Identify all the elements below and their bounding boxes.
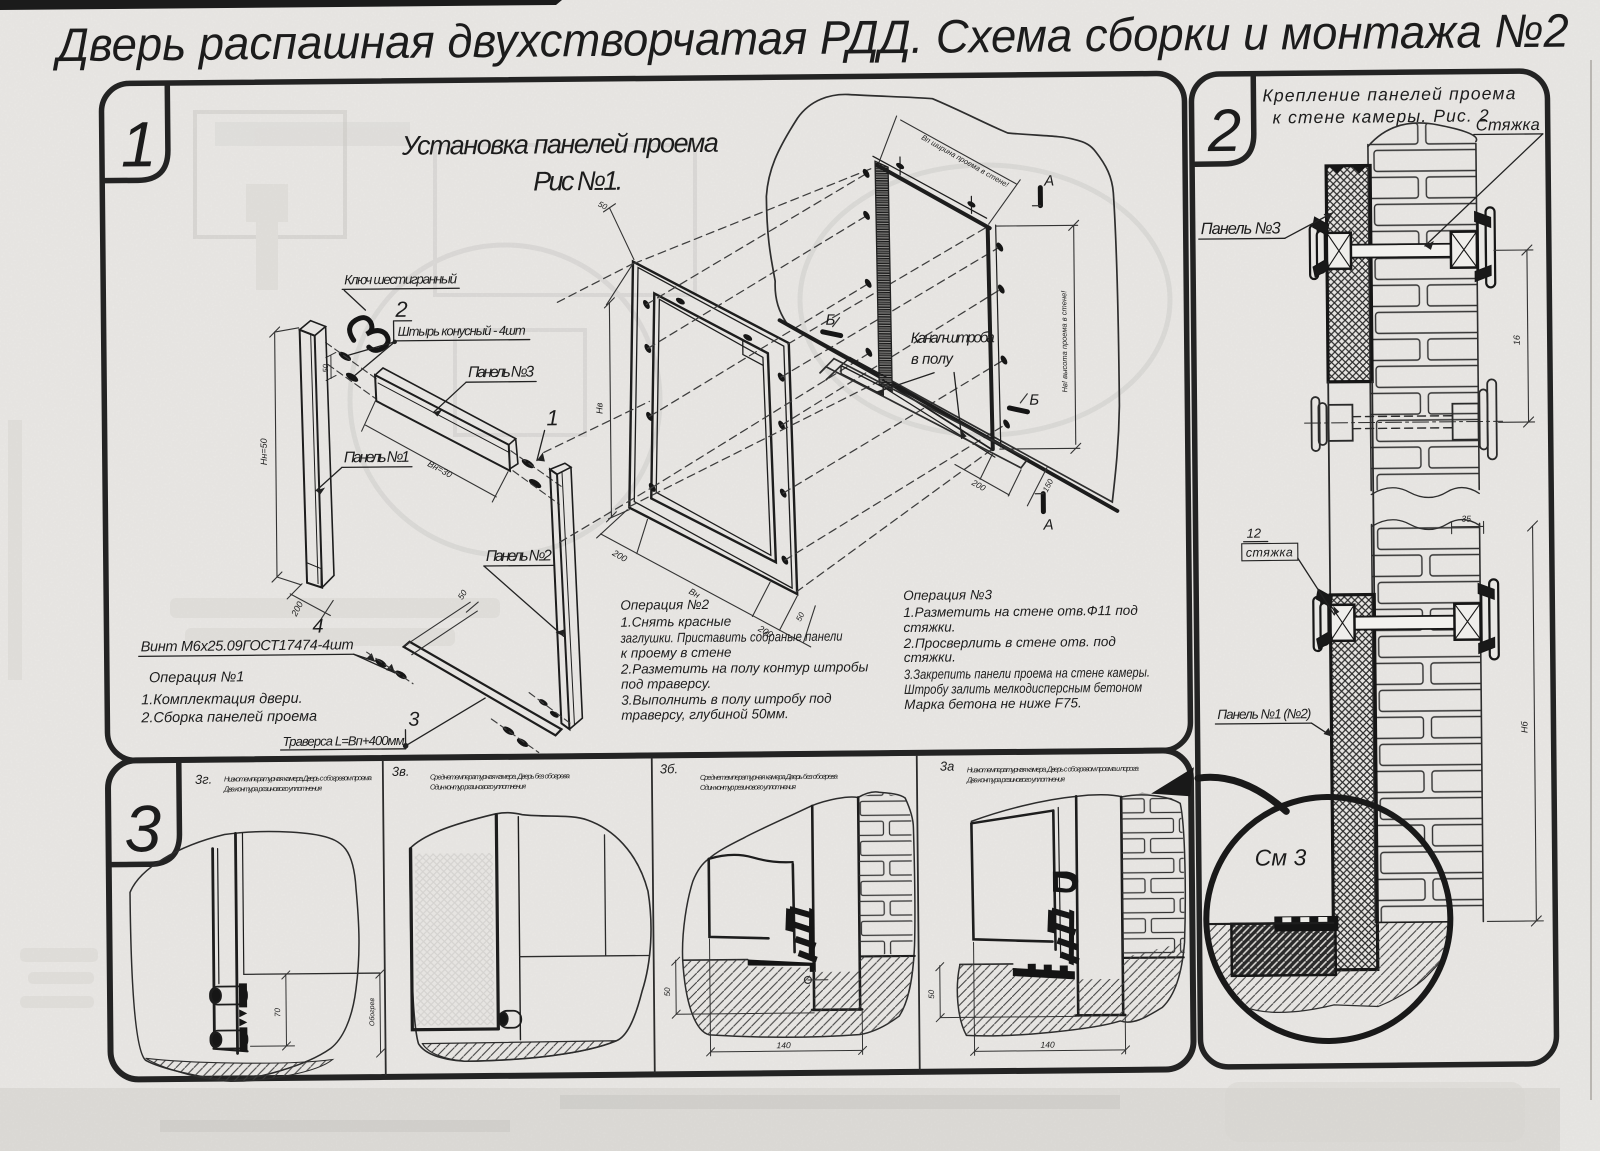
svg-text:3а: 3а	[940, 759, 955, 774]
svg-text:1.Комплектация двери.: 1.Комплектация двери.	[141, 691, 303, 709]
svg-text:стяжка: стяжка	[1246, 545, 1293, 559]
svg-text:3г.: 3г.	[195, 772, 212, 787]
svg-text:Низкотемпературная камера. Две: Низкотемпературная камера. Дверь с обогр…	[967, 764, 1139, 775]
svg-text:Обогрев: Обогрев	[368, 998, 376, 1027]
svg-text:Марка бетона не ниже F75.: Марка бетона не ниже F75.	[904, 695, 1082, 712]
svg-text:Стяжка: Стяжка	[1476, 116, 1540, 135]
svg-text:Среднетемпературная камера.Две: Среднетемпературная камера.Дверь без обо…	[700, 772, 838, 782]
svg-text:2.Сборка панелей проема: 2.Сборка панелей проема	[140, 709, 317, 727]
svg-text:50: 50	[663, 987, 672, 997]
svg-text:стяжки.: стяжки.	[904, 650, 956, 665]
svg-text:140: 140	[776, 1040, 791, 1050]
svg-text:к проему в стене: к проему в стене	[621, 645, 732, 661]
svg-text:заглушки. Приставить собраные: заглушки. Приставить собраные панели	[620, 629, 843, 646]
svg-text:Операция №2: Операция №2	[620, 597, 709, 613]
svg-text:1: 1	[120, 108, 156, 180]
svg-text:А: А	[1043, 173, 1054, 190]
svg-text:Один контур резинового уплотне: Один контур резинового уплотнения	[700, 782, 796, 792]
svg-text:50: 50	[927, 989, 936, 999]
svg-text:4: 4	[312, 616, 323, 638]
svg-text:Операция №1: Операция №1	[149, 669, 245, 686]
svg-text:траверсу, глубиной 50мм.: траверсу, глубиной 50мм.	[621, 706, 789, 723]
svg-text:1.Разметить на стене отв.Ф11 п: 1.Разметить на стене отв.Ф11 под	[903, 603, 1138, 620]
svg-text:Панель №2: Панель №2	[486, 547, 553, 565]
svg-text:Штробу залить мелкодисперсным: Штробу залить мелкодисперсным бетоном	[904, 680, 1142, 697]
svg-text:3.Выполнить в полу штробу под: 3.Выполнить в полу штробу под	[621, 691, 832, 708]
svg-text:12: 12	[1247, 526, 1262, 541]
svg-text:16: 16	[1512, 335, 1522, 345]
svg-text:3: 3	[124, 791, 162, 865]
svg-text:Траверса L=Вп+400мм: Траверса L=Вп+400мм	[283, 733, 405, 749]
svg-text:3в.: 3в.	[392, 764, 410, 779]
svg-text:Два контура резинового уплотне: Два контура резинового уплотнения	[966, 774, 1065, 784]
svg-text:А: А	[1042, 517, 1053, 534]
svg-text:Нб: Нб	[1519, 721, 1529, 734]
svg-text:Панель №3: Панель №3	[1201, 219, 1282, 238]
svg-text:Панель №1: Панель №1	[344, 449, 410, 467]
svg-text:Операция №3: Операция №3	[903, 587, 992, 603]
svg-text:Установка панелей проема: Установка панелей проема	[401, 128, 719, 161]
svg-text:стяжки.: стяжки.	[903, 620, 955, 635]
svg-text:См 3: См 3	[1255, 844, 1307, 870]
svg-text:Рис №1.: Рис №1.	[533, 166, 623, 197]
svg-text:2: 2	[394, 297, 407, 322]
svg-text:Нн=50: Нн=50	[259, 438, 269, 465]
svg-text:1: 1	[546, 405, 558, 430]
svg-text:Штырь конусный - 4шт: Штырь конусный - 4шт	[398, 323, 526, 339]
svg-text:Ключ шестигранный: Ключ шестигранный	[344, 271, 458, 287]
svg-text:Крепление панелей проема: Крепление панелей проема	[1262, 83, 1515, 105]
svg-text:Б: Б	[825, 312, 835, 329]
svg-text:Нв: Нв	[594, 402, 604, 414]
svg-text:к стене камеры. Рис. 2: к стене камеры. Рис. 2	[1273, 105, 1489, 127]
svg-text:Два контура резинового уплотне: Два контура резинового уплотнения	[223, 784, 322, 794]
svg-text:Нв! высота проема в стене!: Нв! высота проема в стене!	[1059, 290, 1069, 393]
svg-text:Один контур резинового уплотне: Один контур резинового уплотнения	[430, 782, 526, 792]
svg-text:Панель №3: Панель №3	[468, 364, 535, 382]
svg-text:3: 3	[408, 709, 419, 731]
svg-text:Панель №1 (№2): Панель №1 (№2)	[1217, 706, 1311, 722]
svg-text:140: 140	[1040, 1040, 1055, 1050]
svg-text:3б.: 3б.	[660, 761, 678, 776]
svg-text:1.Снять красные: 1.Снять красные	[620, 614, 731, 630]
svg-text:Винт М6х25.09ГОСТ17474-4шт: Винт М6х25.09ГОСТ17474-4шт	[141, 637, 354, 655]
svg-text:Среднетемпературная камера. Дв: Среднетемпературная камера. Дверь без об…	[430, 771, 570, 781]
svg-text:35: 35	[1461, 514, 1471, 524]
svg-text:под траверсу.: под траверсу.	[621, 676, 711, 692]
svg-text:Низкотемпературная камера.Двер: Низкотемпературная камера.Дверь с обогре…	[224, 773, 372, 783]
svg-text:в полу: в полу	[911, 351, 955, 368]
svg-text:2.Просверлить в стене отв. п: 2.Просверлить в стене отв. под	[903, 634, 1117, 651]
svg-text:Канал-штроба: Канал-штроба	[911, 329, 995, 347]
svg-text:2.Разметить на полу контур штр: 2.Разметить на полу контур штробы	[620, 659, 869, 676]
svg-text:2: 2	[1206, 97, 1241, 164]
svg-text:Б: Б	[1029, 392, 1039, 409]
svg-text:70: 70	[273, 1008, 282, 1018]
